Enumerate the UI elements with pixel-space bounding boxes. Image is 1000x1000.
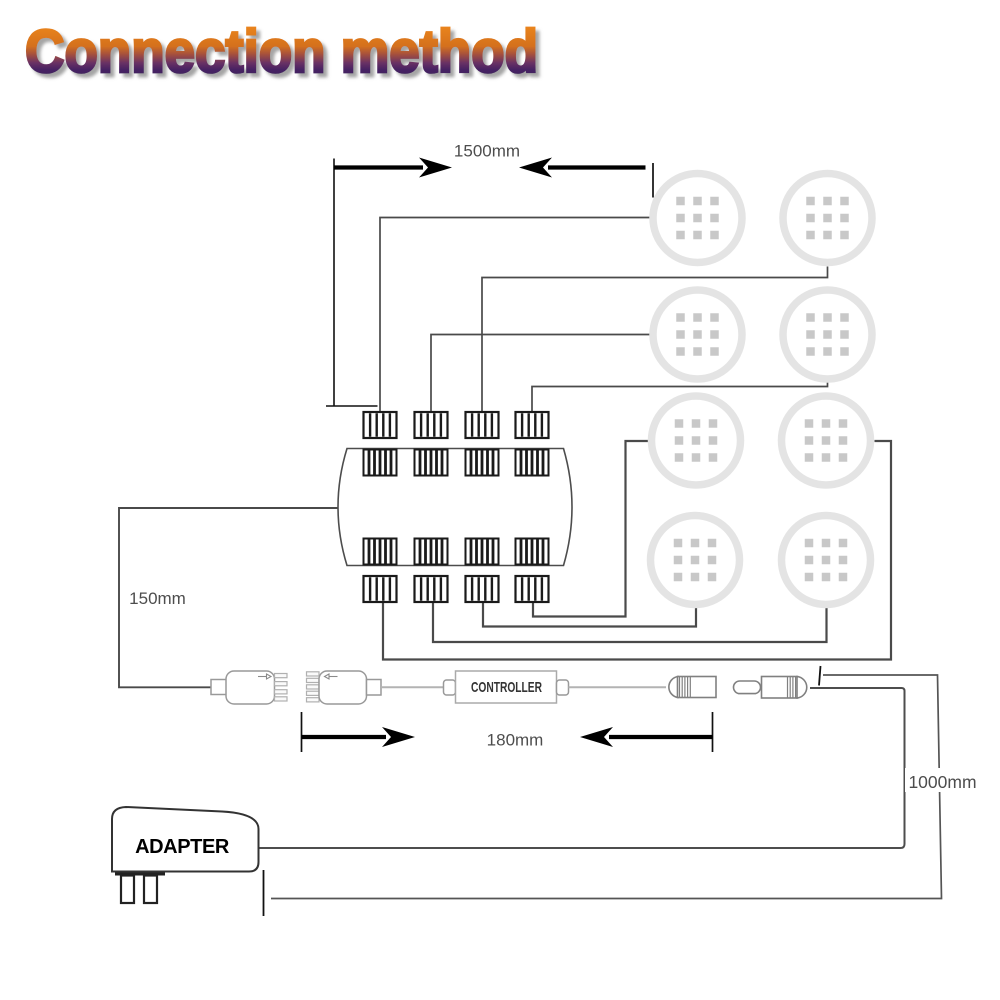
svg-text:ADAPTER: ADAPTER [135,836,230,858]
svg-text:Connection method: Connection method [25,18,538,85]
svg-text:CONTROLLER: CONTROLLER [471,679,542,696]
svg-text:1500mm: 1500mm [454,142,520,161]
svg-text:150mm: 150mm [129,589,186,608]
svg-text:1000mm: 1000mm [908,772,976,792]
svg-text:180mm: 180mm [487,731,544,750]
